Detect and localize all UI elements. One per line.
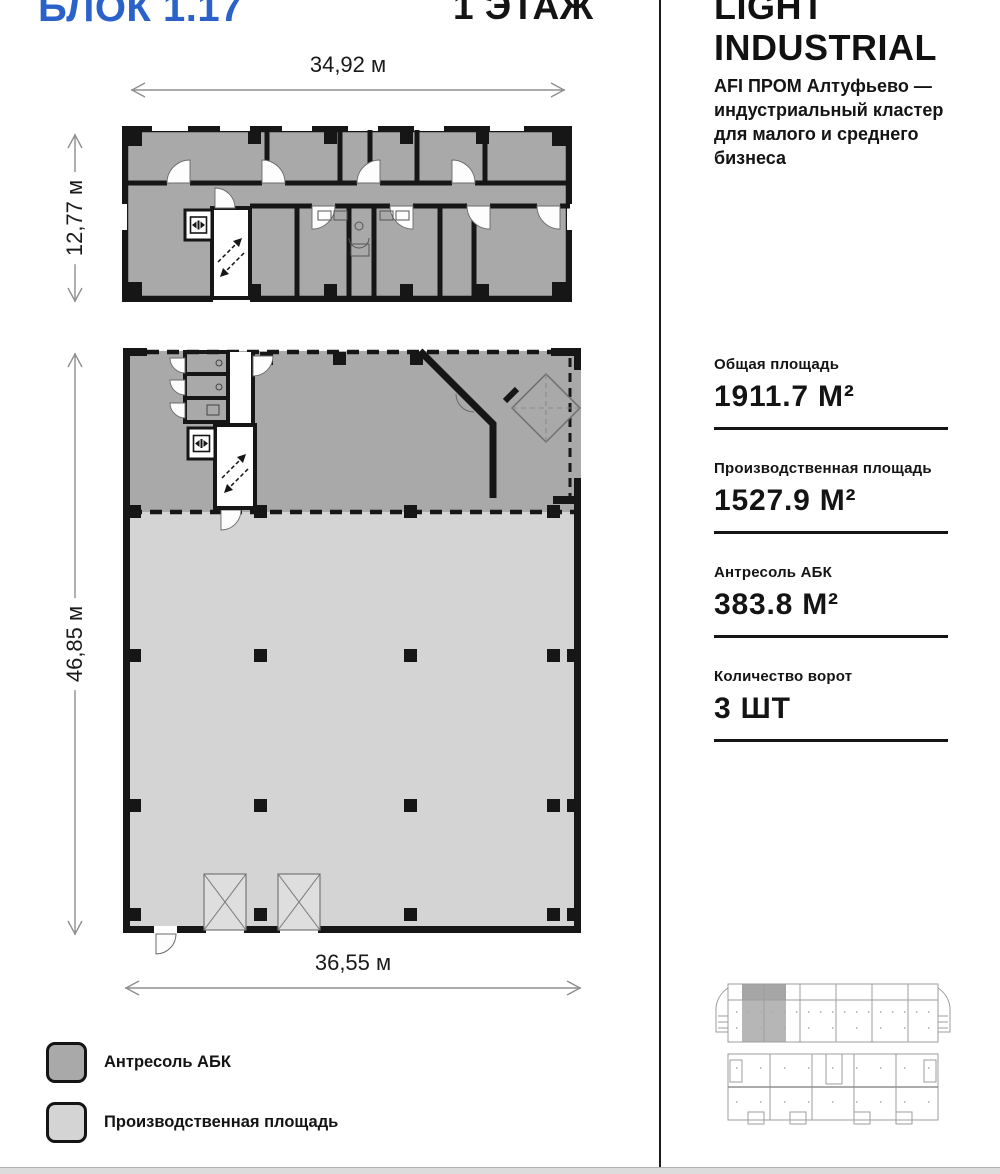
page-title: БЛОК 1.17 (38, 0, 243, 31)
stat-value: 1527.9 М² (714, 484, 948, 518)
stat-gates-count: Количество ворот 3 ШТ (714, 668, 948, 742)
stat-mezzanine-area: Антресоль АБК 383.8 М² (714, 564, 948, 638)
stat-value: 3 ШТ (714, 692, 948, 726)
stat-production-area: Производственная площадь 1527.9 М² (714, 460, 948, 534)
dimension-label: 46,85 м (61, 598, 89, 690)
legend-swatch (46, 1102, 87, 1143)
stats-list: Общая площадь 1911.7 М² Производственная… (714, 356, 948, 772)
floor-plan-ground (123, 346, 585, 964)
stat-label: Производственная площадь (714, 460, 948, 477)
stat-label: Общая площадь (714, 356, 948, 373)
floor-plan-mezzanine (122, 126, 572, 302)
stat-label: Количество ворот (714, 668, 948, 685)
stat-total-area: Общая площадь 1911.7 М² (714, 356, 948, 430)
stat-value: 383.8 М² (714, 588, 948, 622)
stair-shaft (215, 425, 255, 508)
page-edge-strip (0, 1167, 1000, 1174)
project-description: AFI ПРОМ Алтуфьево — индустриальный клас… (714, 74, 948, 170)
legend-item-production: Производственная площадь (46, 1102, 338, 1143)
legend-swatch (46, 1042, 87, 1083)
dimension-arrow (128, 80, 568, 100)
brand-line-1: LIGHT (714, 0, 937, 27)
floor-title: 1 ЭТАЖ (453, 0, 594, 28)
dimension-ground-height: 46,85 м (58, 350, 92, 938)
brand-line-2: INDUSTRIAL (714, 27, 937, 68)
dimension-top-width: 34,92 м (128, 52, 568, 105)
vertical-divider (659, 0, 661, 1167)
dimension-arrow (122, 978, 584, 998)
dimension-label: 34,92 м (128, 52, 568, 78)
stat-label: Антресоль АБК (714, 564, 948, 581)
legend-label: Производственная площадь (104, 1113, 338, 1132)
stair-shaft (212, 208, 250, 298)
legend-item-mezzanine: Антресоль АБК (46, 1042, 231, 1083)
legend-label: Антресоль АБК (104, 1053, 231, 1072)
corridor (228, 352, 253, 425)
brand-logo: LIGHT INDUSTRIAL (714, 0, 937, 68)
stat-value: 1911.7 М² (714, 380, 948, 414)
brochure-page: БЛОК 1.17 1 ЭТАЖ LIGHT INDUSTRIAL AFI ПР… (0, 0, 1000, 1174)
dimension-label: 12,77 м (61, 172, 89, 264)
door-gap (154, 926, 177, 934)
dimension-mezzanine-height: 12,77 м (58, 131, 92, 305)
production-zone (123, 512, 581, 926)
door-swing (156, 934, 176, 954)
site-minimap (712, 976, 954, 1128)
